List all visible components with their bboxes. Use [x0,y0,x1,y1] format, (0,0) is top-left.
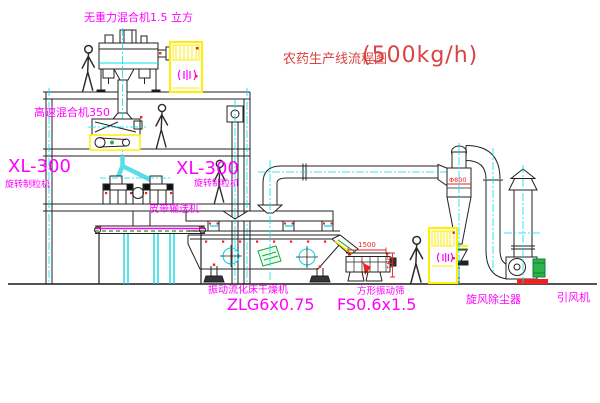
worker-figure-ground [410,236,422,283]
fan-label: 引风机 [557,292,590,303]
gravity-mixer-label: 无重力混合机1.5 立方 [84,12,193,23]
belt-conveyor [95,211,206,284]
fluid-bed-dryer [186,211,340,282]
worker-figure-roof [82,45,94,91]
belt-conveyor-label: 皮带输送机 [149,205,199,215]
cyclone-label: 旋风除尘器 [466,294,521,305]
dryer-discharge-chute [332,235,358,255]
high-speed-mixer-label: 高速混合机350 [34,107,110,118]
control-cabinet-right [429,228,457,283]
dryer-model-label: ZLG6x0.75 [227,297,315,313]
granulator-left-name-label: 旋转制粒机 [5,181,50,190]
screen-height-dimension: 541 [385,256,392,269]
manufacturer-logo [258,246,281,266]
worker-figure-floor2 [156,104,168,148]
screen-length-dimension: 1500 [358,242,376,249]
diagram-page: 无重力混合机1.5 立方 农药生产线流程图 (500kg/h) 高速混合机350… [0,0,600,403]
granulator-center-name-label: 旋转制粒机 [194,180,239,189]
granulator-left-model-label: XL-300 [8,158,71,176]
induced-draft-fan [506,257,548,284]
granulator-left [103,176,133,204]
screen-model-label: FS0.6x1.5 [337,297,416,313]
control-cabinet-top [170,42,202,92]
cyclone-outlet-duct [466,146,511,280]
cyclone-diameter-dimension: Φ800 [449,177,467,184]
granulator-center-model-label: XL-300 [176,160,239,178]
diagram-title-capacity: (500kg/h) [362,45,478,67]
